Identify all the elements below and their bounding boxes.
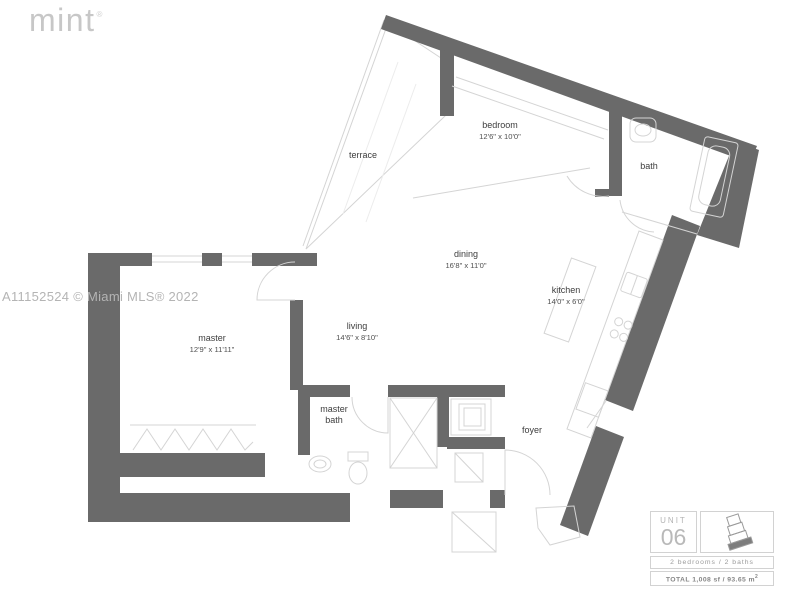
floor-plan-page: mint® A11152524 © Miami MLS® 2022 <box>0 0 799 599</box>
unit-number-box: UNIT 06 <box>650 511 697 553</box>
wall-segment <box>298 385 350 397</box>
total-label: TOTAL <box>666 576 690 583</box>
keyplan-icon <box>709 513 765 551</box>
room-dims-kitchen: 14'0" x 6'0" <box>547 297 585 306</box>
shower <box>390 398 437 468</box>
wall-segment <box>447 437 505 449</box>
keyplan-box <box>700 511 774 553</box>
wall-segment <box>490 490 505 508</box>
room-label-master: master <box>198 333 226 343</box>
master-bath-sink <box>309 456 331 472</box>
unit-info-panel: UNIT 06 2 bedrooms / 2 baths TOTAL 1,008… <box>650 511 774 586</box>
wall-segment <box>609 108 622 196</box>
room-dims-living: 14'6" x 8'10" <box>336 333 378 342</box>
total-sup: 2 <box>755 574 758 580</box>
room-label-master-bath-1: master <box>320 404 348 414</box>
unit-panel-top-row: UNIT 06 <box>650 511 774 553</box>
total-area-row: TOTAL 1,008 sf / 93.65 m2 <box>650 571 774 586</box>
bedroom-slider-line <box>413 168 590 198</box>
room-label-master-bath-2: bath <box>325 415 343 425</box>
room-label-dining: dining <box>454 249 478 259</box>
wall-segment <box>560 426 624 536</box>
master-bath-door-arc <box>352 397 388 433</box>
room-label-living: living <box>347 321 368 331</box>
wall-segment <box>390 490 443 508</box>
room-dims-bedroom: 12'6" x 10'0" <box>479 132 521 141</box>
toilet <box>348 452 368 484</box>
wall-segment <box>202 253 222 266</box>
wall-segment <box>388 385 505 397</box>
room-label-bath: bath <box>640 161 658 171</box>
wall-segment <box>88 493 350 522</box>
room-label-kitchen: kitchen <box>552 285 581 295</box>
room-dims-master: 12'9" x 11'11" <box>190 345 235 354</box>
terrace-outline <box>306 23 450 249</box>
unit-number: 06 <box>661 526 687 549</box>
corridor-features <box>452 506 580 552</box>
wall-segment <box>298 397 310 455</box>
wall-segment <box>88 253 152 266</box>
beds-baths-row: 2 bedrooms / 2 baths <box>650 556 774 569</box>
closet-zigzag <box>133 429 253 450</box>
wall-segment <box>290 300 303 390</box>
room-label-bedroom: bedroom <box>482 120 518 130</box>
linen-closet <box>455 453 483 482</box>
corridor-shaft-diagonal <box>452 512 496 552</box>
total-value: 1,008 sf / 93.65 m <box>692 576 755 583</box>
wall-segment <box>440 49 454 116</box>
room-label-terrace: terrace <box>349 150 377 160</box>
entry-door-arc <box>505 450 550 495</box>
master-door-arc <box>257 262 295 300</box>
mls-watermark: A11152524 © Miami MLS® 2022 <box>2 289 199 304</box>
terrace-area <box>303 20 450 249</box>
room-label-foyer: foyer <box>522 425 542 435</box>
room-dims-dining: 16'8" x 11'0" <box>445 261 486 270</box>
wall-segment <box>120 453 265 477</box>
washer-dryer-closet <box>451 399 491 435</box>
wall-segment <box>252 253 317 266</box>
